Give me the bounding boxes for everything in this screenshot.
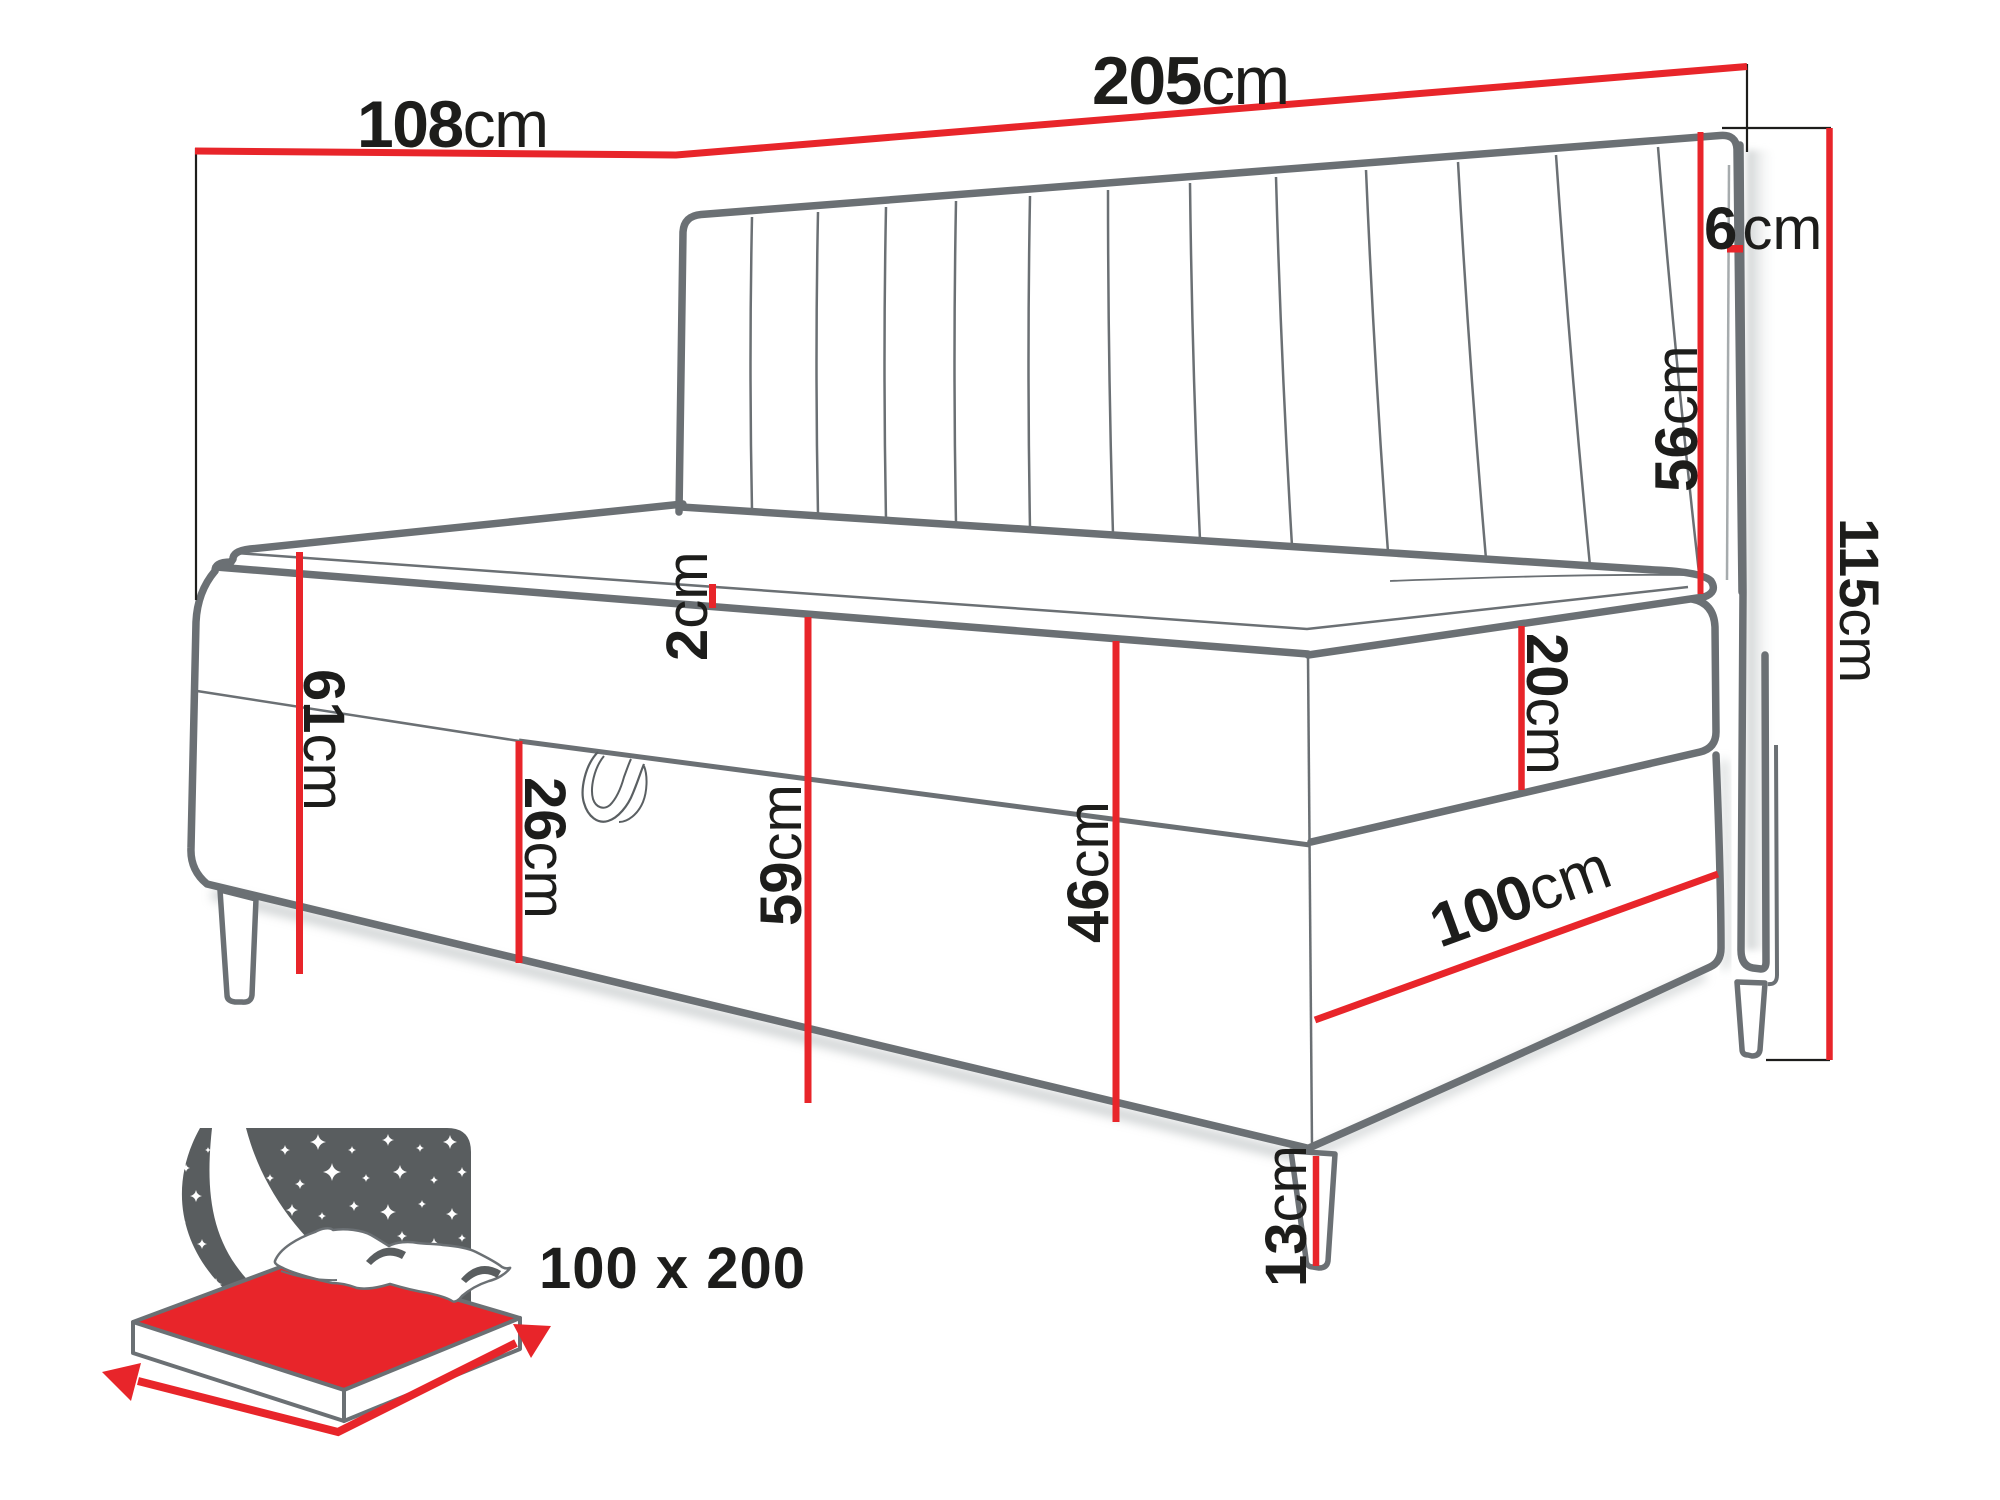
svg-text:115cm: 115cm bbox=[1828, 518, 1891, 683]
svg-text:100 x 200: 100 x 200 bbox=[539, 1236, 806, 1301]
svg-text:205cm: 205cm bbox=[1092, 43, 1289, 119]
svg-text:26cm: 26cm bbox=[512, 777, 577, 919]
svg-text:46cm: 46cm bbox=[1056, 801, 1121, 943]
svg-text:61cm: 61cm bbox=[291, 669, 356, 811]
svg-text:56cm: 56cm bbox=[1643, 345, 1710, 492]
svg-text:108cm: 108cm bbox=[357, 87, 548, 161]
svg-text:59cm: 59cm bbox=[749, 784, 814, 926]
svg-text:6cm: 6cm bbox=[1704, 195, 1822, 262]
svg-text:13cm: 13cm bbox=[1254, 1145, 1319, 1287]
svg-text:20cm: 20cm bbox=[1514, 633, 1579, 775]
svg-text:2cm: 2cm bbox=[655, 551, 720, 661]
